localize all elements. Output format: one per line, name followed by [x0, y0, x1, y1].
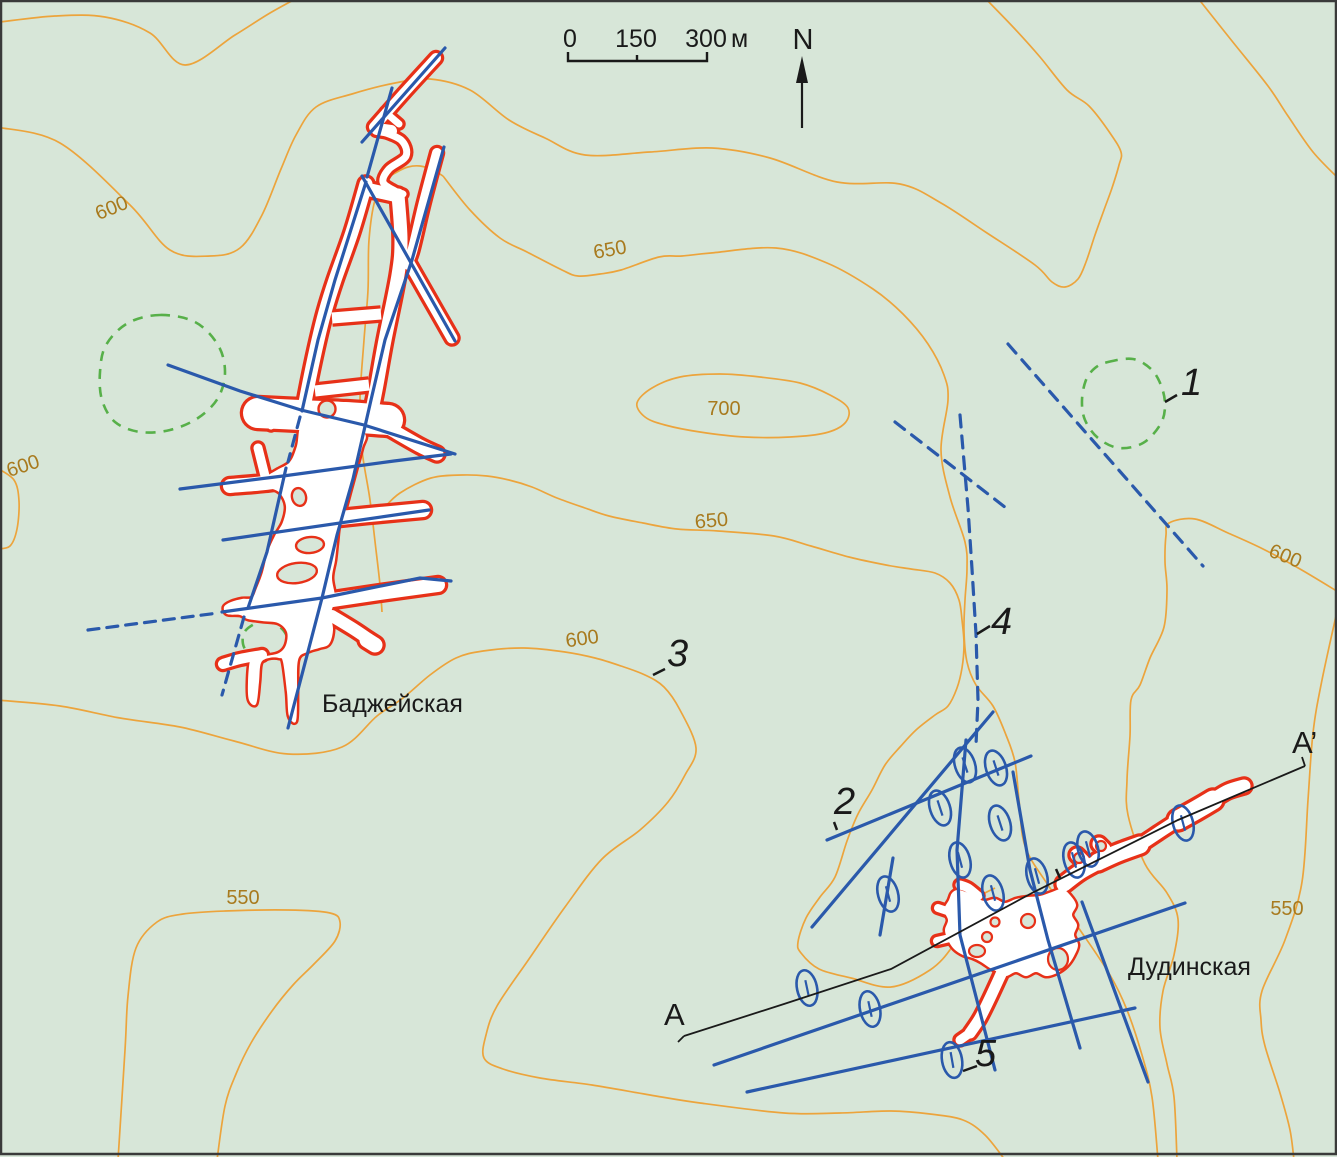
svg-text:550: 550	[1270, 898, 1303, 920]
svg-text:650: 650	[694, 509, 729, 534]
svg-text:A: A	[664, 997, 685, 1032]
svg-text:550: 550	[226, 887, 259, 909]
svg-text:Баджейская: Баджейская	[322, 690, 463, 718]
svg-text:5: 5	[975, 1033, 997, 1075]
svg-text:Дудинская: Дудинская	[1128, 953, 1251, 981]
svg-text:3: 3	[667, 633, 688, 675]
svg-text:A’: A’	[1292, 725, 1317, 760]
svg-text:700: 700	[707, 398, 740, 420]
svg-text:4: 4	[991, 601, 1012, 643]
svg-text:2: 2	[833, 781, 855, 823]
svg-text:300: 300	[685, 25, 727, 53]
svg-text:150: 150	[615, 25, 657, 53]
svg-text:0: 0	[563, 25, 577, 53]
svg-text:м: м	[731, 25, 748, 53]
svg-text:1: 1	[1181, 362, 1202, 404]
svg-text:600: 600	[564, 626, 600, 652]
svg-text:N: N	[793, 24, 814, 56]
